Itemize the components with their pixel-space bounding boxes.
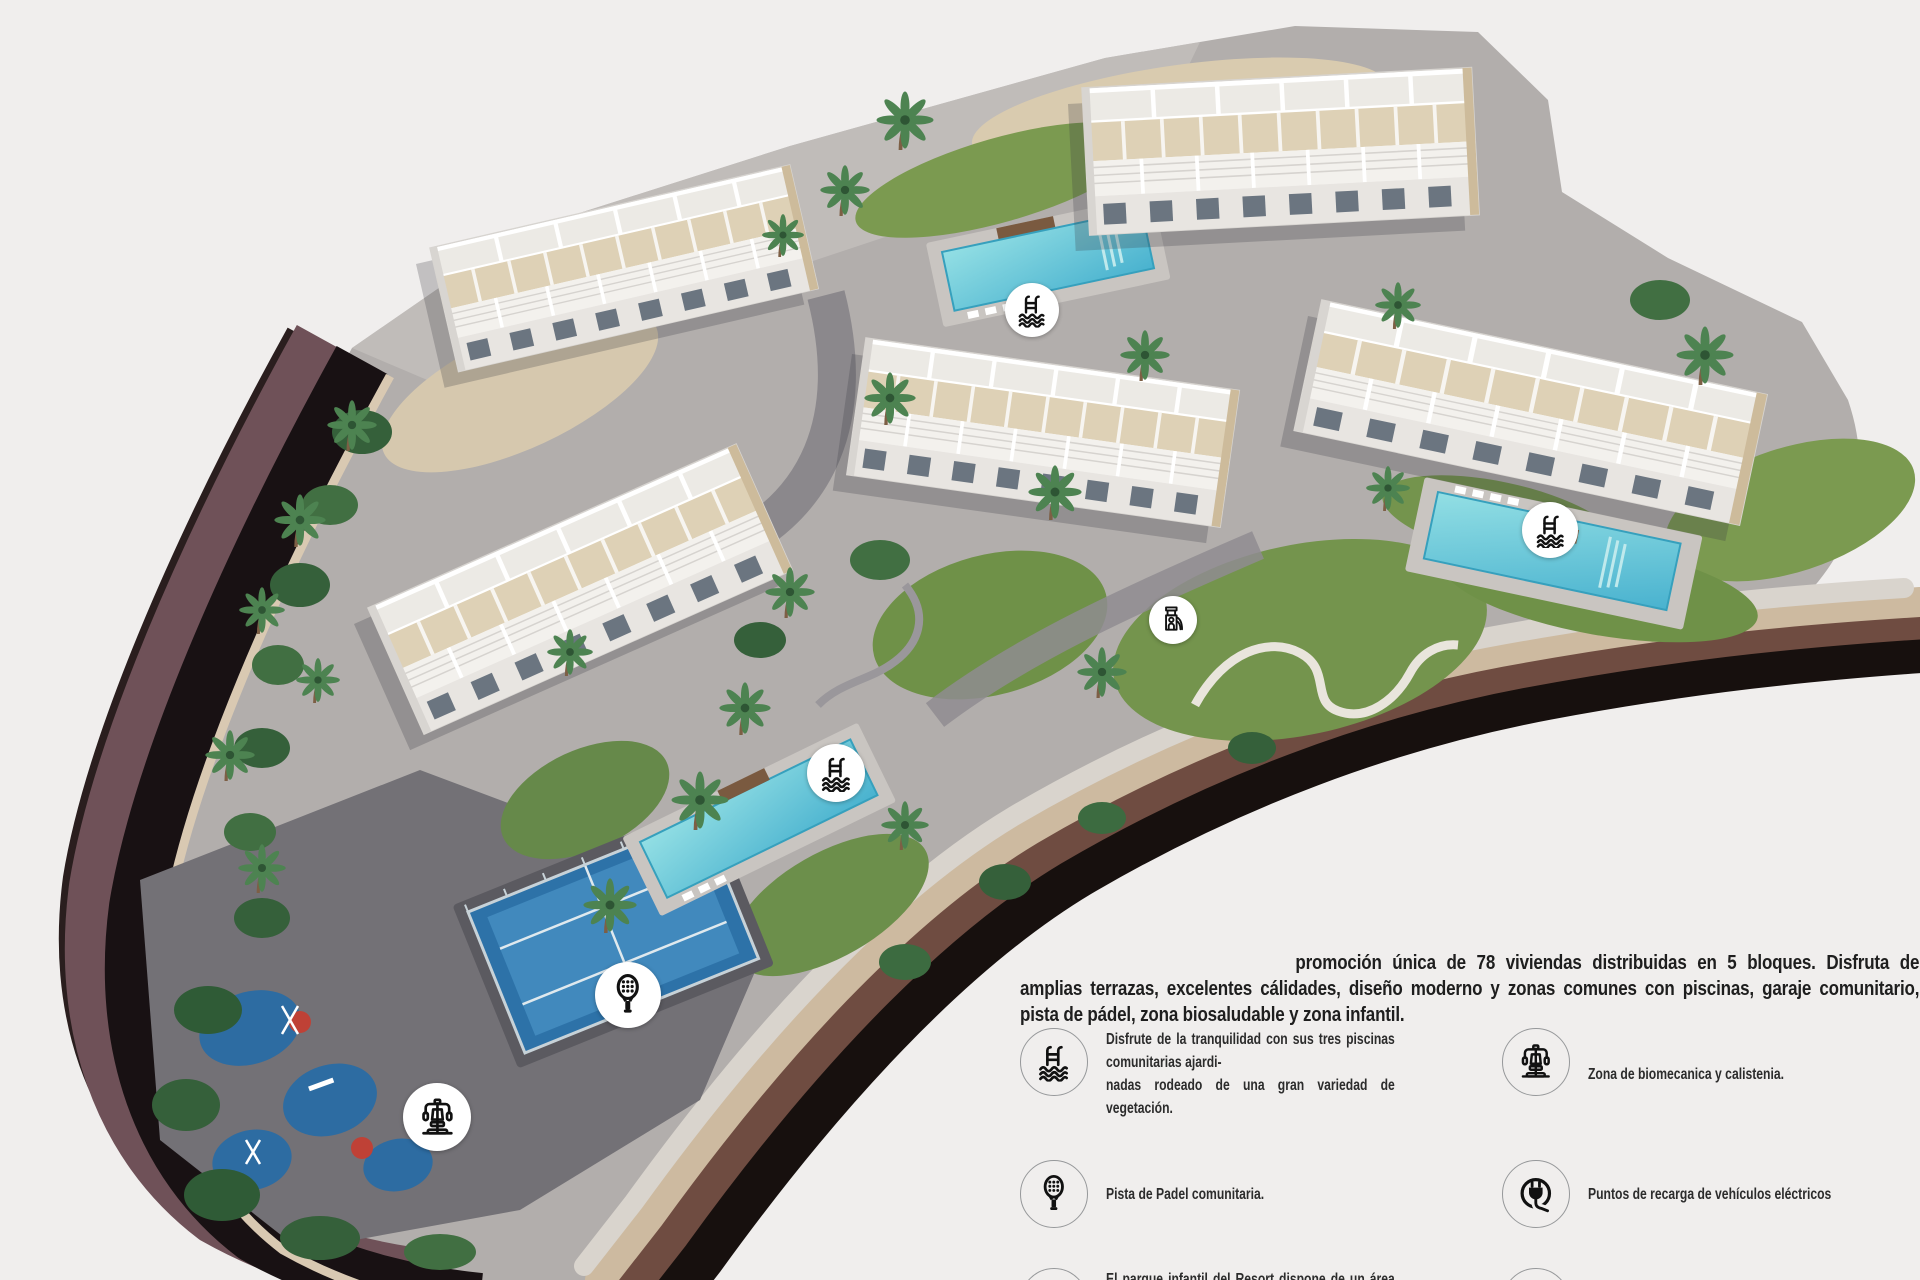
legend-item-label: Puntos de recarga de vehículos eléctrico… [1588,1183,1839,1206]
legend-item-label: Zona de biomecanica y calistenia. [1588,1063,1839,1086]
biomechanics-icon [1516,1042,1556,1082]
pool-icon [1034,1042,1074,1082]
legend-item: Puntos de recarga de vehículos eléctrico… [1588,1160,1918,1228]
legend-item: Disfrute de la tranquilidad con sus tres… [1106,1028,1486,1120]
intro-paragraph: promoción única de 78 viviendas distribu… [1020,950,1919,1028]
legend-item: Pista de Padel comunitaria. [1106,1160,1486,1228]
brochure-page: promoción única de 78 viviendas distribu… [0,0,1920,1280]
legend-item-label: Disfrute de la tranquilidad con sus tres… [1106,1028,1395,1120]
padel-icon [1034,1174,1074,1214]
legend-item: El parque infantil del Resort dispone de… [1106,1268,1486,1280]
amenities-legend: Disfrute de la tranquilidad con sus tres… [1020,1028,1918,1280]
padel-icon [1020,1160,1088,1228]
ev-charger-icon [1502,1160,1570,1228]
legend-item-label: El parque infantil del Resort dispone de… [1106,1268,1395,1280]
legend-item: Seguridad y CCTV [1588,1268,1918,1280]
playground-icon [1020,1268,1088,1280]
biomechanics-icon [1502,1028,1570,1096]
pool-icon [1020,1028,1088,1096]
cctv-icon [1502,1268,1570,1280]
legend-item-label: Pista de Padel comunitaria. [1106,1183,1395,1206]
ev-charger-icon [1516,1174,1556,1214]
legend-item: Zona de biomecanica y calistenia. [1588,1028,1918,1120]
